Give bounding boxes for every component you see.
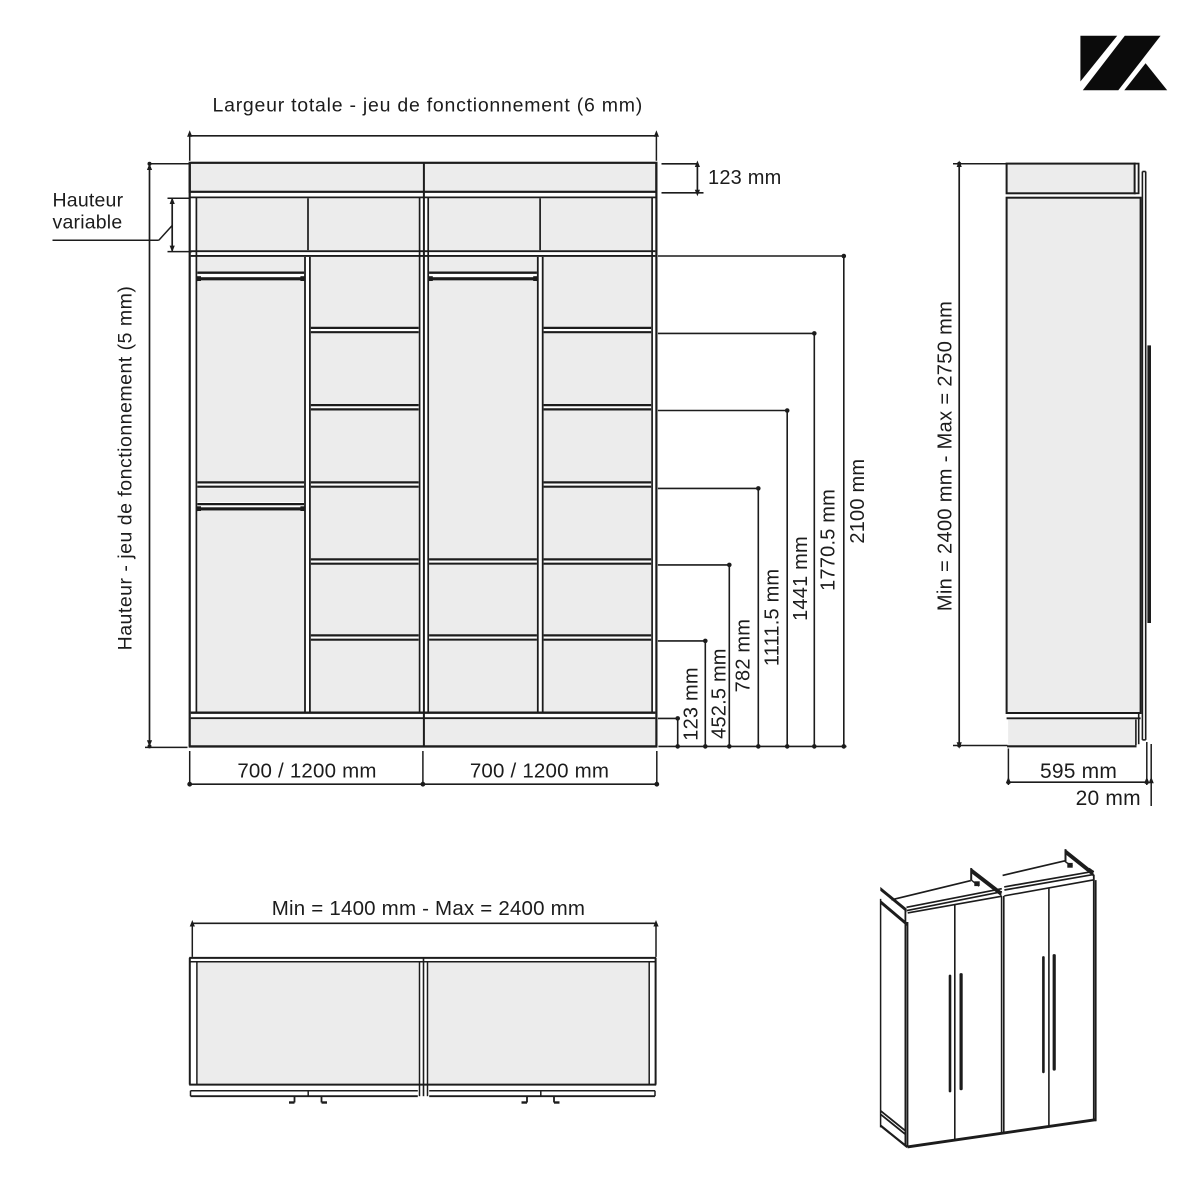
svg-text:782 mm: 782 mm (732, 619, 754, 692)
svg-text:123 mm: 123 mm (681, 667, 703, 740)
svg-text:700 / 1200 mm: 700 / 1200 mm (237, 760, 376, 783)
svg-text:1770.5 mm: 1770.5 mm (817, 489, 839, 591)
svg-text:452.5 mm: 452.5 mm (708, 648, 730, 739)
svg-text:700 / 1200 mm: 700 / 1200 mm (470, 760, 609, 783)
svg-text:595 mm: 595 mm (1040, 760, 1117, 783)
svg-text:Min = 2400 mm - Max = 2750 mm: Min = 2400 mm - Max = 2750 mm (935, 301, 957, 611)
svg-text:1111.5 mm: 1111.5 mm (761, 569, 783, 666)
svg-text:2100 mm: 2100 mm (847, 459, 869, 544)
svg-text:20 mm: 20 mm (1076, 787, 1141, 810)
svg-text:Largeur totale - jeu de foncti: Largeur totale - jeu de fonctionnement (… (213, 95, 643, 117)
svg-text:Hauteur - jeu de fonctionnemen: Hauteur - jeu de fonctionnement (5 mm) (115, 286, 137, 651)
svg-text:123 mm: 123 mm (708, 167, 781, 189)
svg-text:Min = 1400 mm - Max = 2400 mm: Min = 1400 mm - Max = 2400 mm (272, 897, 585, 920)
svg-text:Hauteur: Hauteur (53, 190, 124, 212)
svg-text:1441 mm: 1441 mm (790, 536, 812, 621)
svg-text:variable: variable (53, 212, 123, 234)
